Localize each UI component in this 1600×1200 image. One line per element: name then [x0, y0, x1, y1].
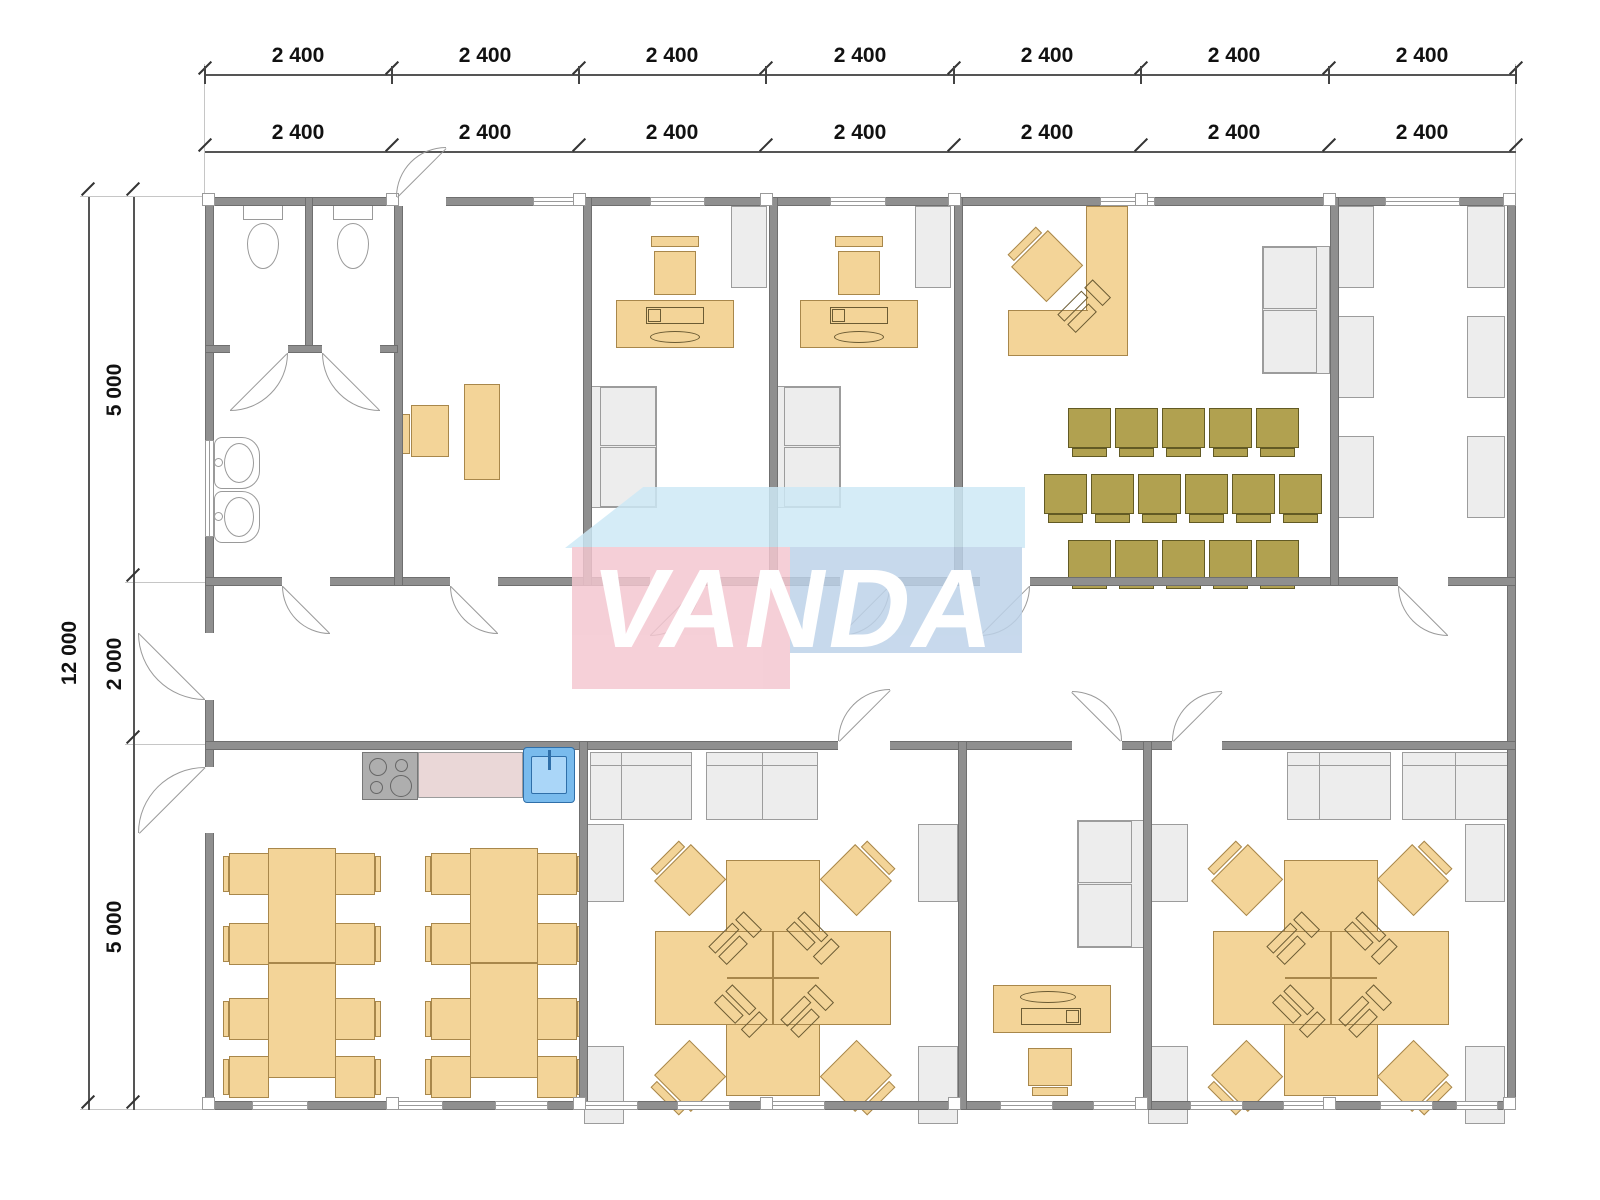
chair-back [1048, 514, 1083, 523]
audience-chair [1162, 540, 1205, 580]
dining-chair [431, 923, 471, 965]
cabinet [1336, 436, 1374, 518]
sink-bowl [224, 497, 254, 537]
interior-wall [1330, 197, 1339, 586]
office-chair [815, 835, 901, 921]
window [1380, 1101, 1433, 1110]
dimension-label: 2 400 [627, 44, 717, 68]
audience-chair [1068, 540, 1111, 580]
chair-back [1072, 448, 1107, 457]
sofa-cushion [784, 447, 840, 507]
dining-chair [537, 923, 577, 965]
interior-wall [954, 197, 963, 586]
toilet-bowl [337, 223, 369, 269]
dimension-label: 2 400 [815, 121, 905, 145]
sofa-cushion [784, 387, 840, 446]
dining-chair [335, 923, 375, 965]
audience-chair [1068, 408, 1111, 448]
door-open-office [838, 689, 890, 741]
cabinet [1465, 824, 1505, 902]
dimension-label: 2 400 [440, 121, 530, 145]
audience-chair [1232, 474, 1275, 514]
audience-chair [1279, 474, 1322, 514]
sink-tap [214, 458, 223, 467]
chair-back [1283, 514, 1318, 523]
chair-back [1260, 448, 1295, 457]
sofa-cushion [1263, 247, 1317, 309]
interior-wall [769, 197, 778, 586]
kitchen-counter [418, 752, 523, 798]
chair-back [1189, 514, 1224, 523]
dining-chair [537, 1056, 577, 1098]
cabinet-row [590, 752, 692, 820]
audience-chair [1091, 474, 1134, 514]
office-chair [1372, 835, 1458, 921]
dimension-label: 5 000 [103, 340, 127, 440]
cabinet [918, 1046, 958, 1124]
dimension-label: 2 400 [1002, 121, 1092, 145]
chair-back [1032, 1087, 1068, 1096]
window [1000, 1101, 1053, 1110]
audience-chair [1209, 408, 1252, 448]
chair-back [1142, 514, 1177, 523]
door-washroom [282, 586, 330, 634]
sofa-cushion [600, 447, 656, 507]
door-small-office [1072, 691, 1122, 741]
chair-back [1095, 514, 1130, 523]
cabinet [1148, 1046, 1188, 1124]
mouse-tray [834, 331, 884, 343]
desk [464, 384, 500, 480]
audience-chair [1115, 540, 1158, 580]
sink-tap [214, 512, 223, 521]
audience-chair [1256, 408, 1299, 448]
dimension-label: 2 400 [1189, 44, 1279, 68]
window [495, 1101, 548, 1110]
audience-chair [1162, 408, 1205, 448]
audience-chair [1185, 474, 1228, 514]
dimension-line [133, 197, 135, 1110]
cabinet-row [1402, 752, 1508, 820]
audience-chair [1115, 408, 1158, 448]
dining-chair [335, 853, 375, 895]
dimension-label: 2 400 [627, 121, 717, 145]
dining-chair [229, 1056, 269, 1098]
cabinet [1467, 436, 1505, 518]
dining-chair [335, 1056, 375, 1098]
interior-wall [958, 741, 967, 1110]
watermark-text: VANDA [549, 545, 1042, 675]
chair-back [1166, 448, 1201, 457]
dimension-line [205, 151, 1516, 153]
window [252, 1101, 308, 1110]
office-chair [1028, 1048, 1072, 1086]
office-chair [645, 835, 731, 921]
window [1190, 1101, 1243, 1110]
cabinet [1336, 316, 1374, 398]
office-chair [1002, 221, 1088, 307]
chair-headrest [835, 236, 883, 247]
cabinet [731, 206, 767, 288]
dining-chair [229, 923, 269, 965]
dimension-label: 12 000 [58, 598, 82, 708]
dimension-label: 2 400 [440, 44, 530, 68]
sink-bowl [224, 443, 254, 483]
door-office [450, 586, 498, 634]
sofa-cushion [1263, 310, 1317, 373]
audience-chair [1044, 474, 1087, 514]
door-exterior-dining [138, 767, 205, 833]
mouse-tray [650, 331, 700, 343]
dimension-line [205, 74, 1516, 76]
chair-back [1236, 514, 1271, 523]
office-chair [1202, 835, 1288, 921]
dimension-label: 2 400 [253, 44, 343, 68]
door-wc-stall [322, 353, 380, 411]
dimension-label: 2 400 [1377, 121, 1467, 145]
dimension-label: 2 400 [1189, 121, 1279, 145]
dining-chair [335, 998, 375, 1040]
cabinet [584, 1046, 624, 1124]
door-wc-stall [230, 353, 288, 411]
floor-plan: 2 400 2 400 2 400 2 400 2 400 2 400 2 40… [0, 0, 1600, 1200]
cabinet [1467, 206, 1505, 288]
interior-wall [579, 741, 588, 1110]
chair-back [375, 926, 381, 962]
dining-chair [229, 853, 269, 895]
window [205, 440, 214, 537]
window [1456, 1101, 1498, 1110]
dining-chair [431, 998, 471, 1040]
door-open-office [1172, 691, 1222, 741]
office-chair [654, 251, 696, 295]
toilet-bowl [247, 223, 279, 269]
dimension-label: 2 400 [1377, 44, 1467, 68]
dining-chair [537, 853, 577, 895]
toilet-tank [243, 205, 283, 220]
dining-chair [431, 853, 471, 895]
dimension-label: 2 400 [815, 44, 905, 68]
dining-chair [229, 998, 269, 1040]
window [585, 1101, 638, 1110]
cabinet [918, 824, 958, 902]
computer-unit [832, 309, 845, 322]
dimension-label: 2 400 [1002, 44, 1092, 68]
cabinet [1336, 206, 1374, 288]
chair-headrest [651, 236, 699, 247]
cabinet [915, 206, 951, 288]
door-entrance [396, 147, 446, 197]
chair-back [375, 1059, 381, 1095]
dimension-label: 2 400 [253, 121, 343, 145]
chair-back [375, 1001, 381, 1037]
window [677, 1101, 730, 1110]
monitor [1020, 991, 1076, 1003]
interior-wall [1143, 741, 1152, 1110]
stove [362, 752, 418, 800]
interior-wall [394, 197, 403, 586]
window [650, 197, 705, 206]
exterior-wall-right [1507, 197, 1516, 1110]
cabinet [1465, 1046, 1505, 1124]
window [830, 197, 886, 206]
cabinet [1148, 824, 1188, 902]
audience-chair [1209, 540, 1252, 580]
dimension-label: 2 000 [103, 614, 127, 714]
dining-chair [537, 998, 577, 1040]
interior-wall [583, 197, 592, 586]
audience-chair [1256, 540, 1299, 580]
dining-chair [431, 1056, 471, 1098]
sofa-cushion [1078, 884, 1132, 947]
dimension-line [88, 197, 90, 1110]
chair-back [402, 414, 410, 454]
wc-stall-wall [305, 197, 313, 353]
window [1385, 197, 1460, 206]
dimension-label: 5 000 [103, 877, 127, 977]
door-storage [1398, 586, 1448, 636]
office-chair [838, 251, 880, 295]
cabinet [584, 824, 624, 902]
door-exterior-corridor [138, 633, 205, 700]
office-chair [411, 405, 449, 457]
toilet-tank [333, 205, 373, 220]
sofa-cushion [1078, 821, 1132, 883]
chair-back [1119, 448, 1154, 457]
cabinet-row [1287, 752, 1391, 820]
chair-back [375, 856, 381, 892]
cabinet [1467, 316, 1505, 398]
window [772, 1101, 825, 1110]
cabinet-row [706, 752, 818, 820]
kitchen-sink [523, 747, 575, 803]
sofa-cushion [600, 387, 656, 446]
audience-chair [1138, 474, 1181, 514]
chair-back [1213, 448, 1248, 457]
computer-unit [1066, 1010, 1079, 1023]
computer-unit [648, 309, 661, 322]
